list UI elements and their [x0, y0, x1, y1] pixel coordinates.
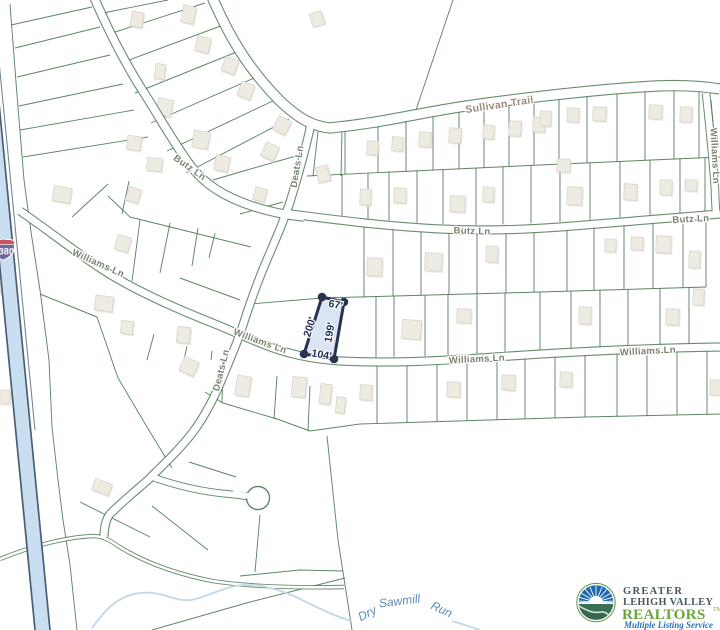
svg-text:380: 380 [0, 247, 14, 257]
svg-text:GREATER: GREATER [623, 586, 683, 597]
svg-text:Butz Ln: Butz Ln [453, 225, 490, 237]
svg-text:TM: TM [713, 607, 720, 613]
svg-text:Butz Ln: Butz Ln [672, 213, 709, 226]
svg-text:Multiple Listing Service: Multiple Listing Service [623, 620, 713, 630]
